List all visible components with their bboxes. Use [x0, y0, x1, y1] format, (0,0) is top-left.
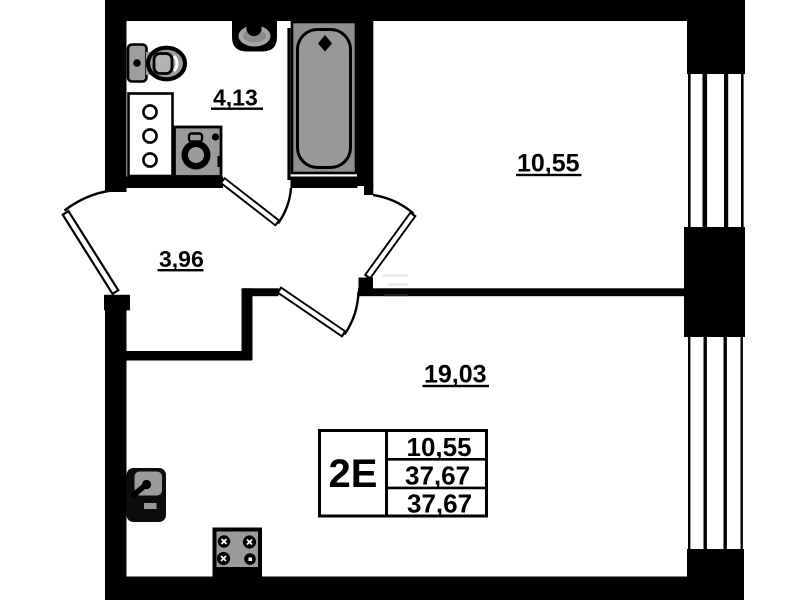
svg-text:3,96: 3,96	[159, 246, 204, 272]
svg-text:37,67: 37,67	[407, 489, 472, 519]
svg-text:4,13: 4,13	[213, 85, 258, 111]
svg-text:10,55: 10,55	[517, 150, 580, 178]
svg-text:10,55: 10,55	[407, 432, 472, 462]
svg-text:2E: 2E	[329, 452, 378, 496]
svg-text:19,03: 19,03	[424, 361, 487, 389]
svg-text:37,67: 37,67	[405, 461, 470, 491]
